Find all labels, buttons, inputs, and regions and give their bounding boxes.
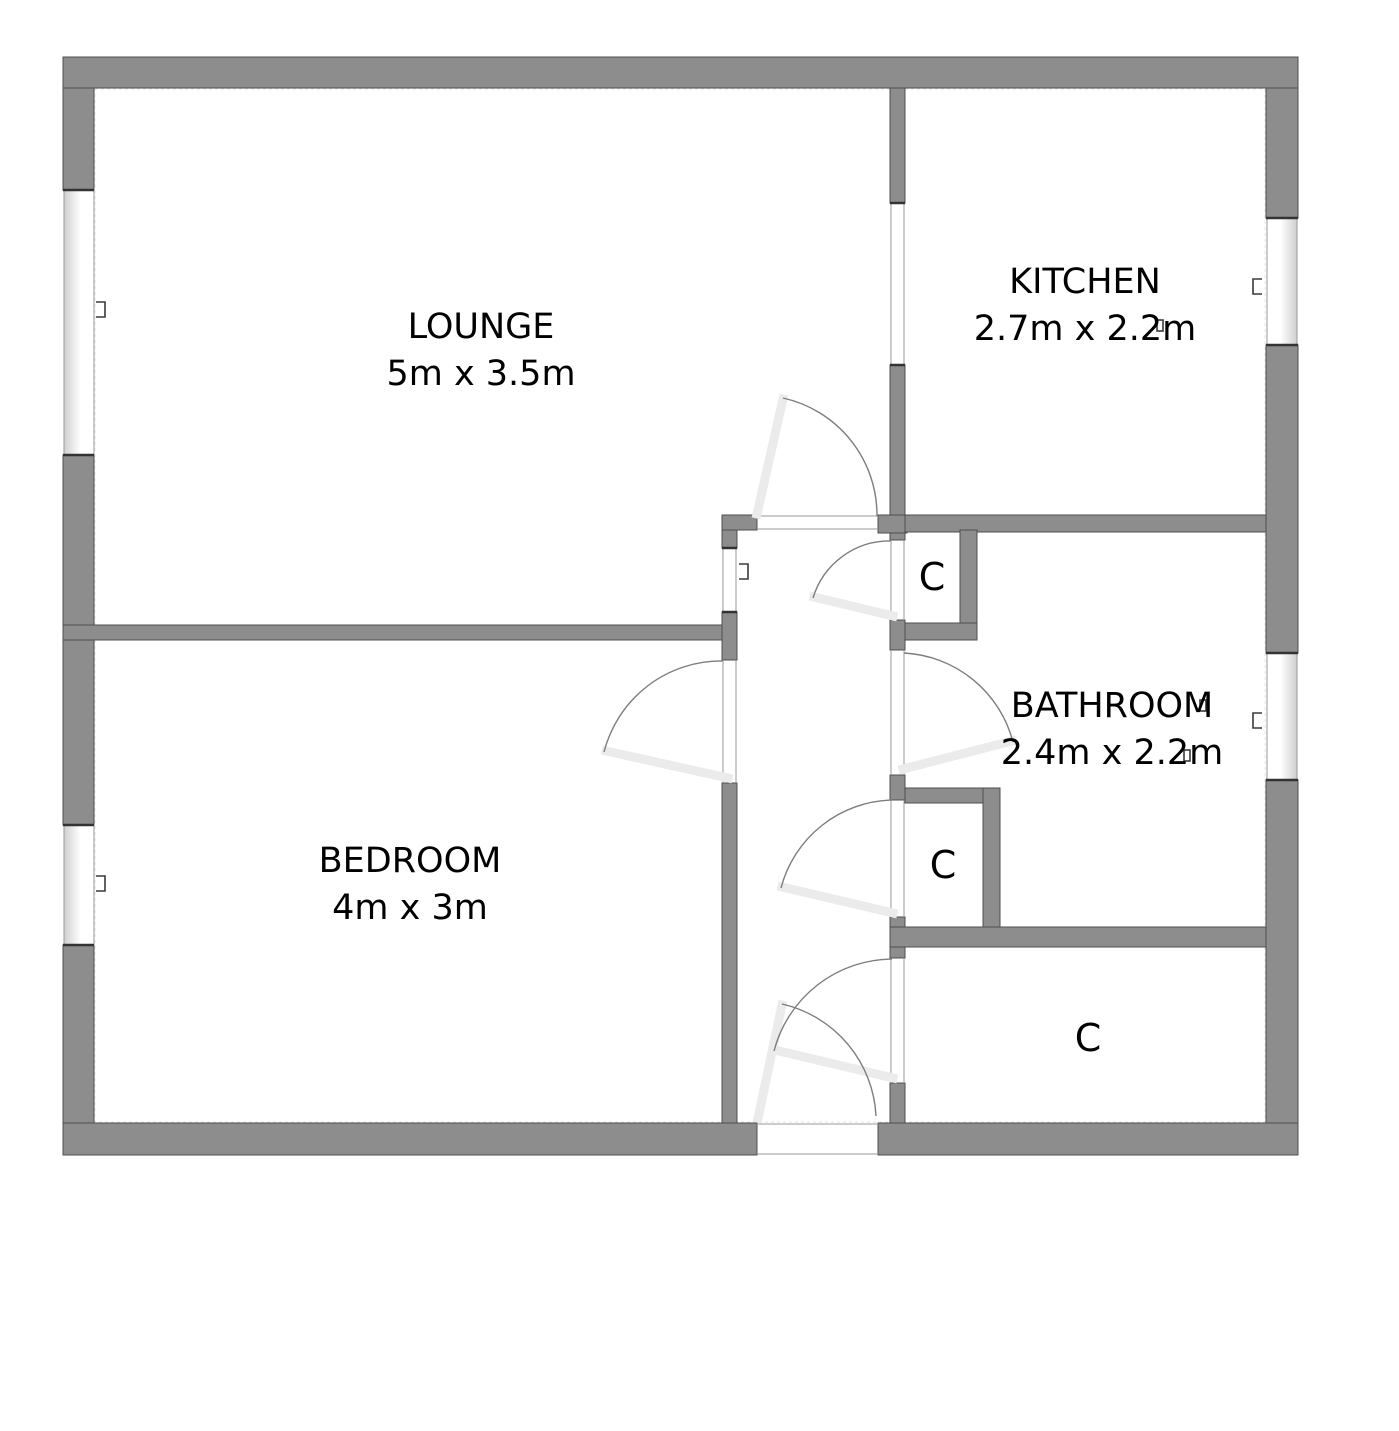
room-dims: 5m x 3.5m [386,351,575,398]
plan-symbols [96,279,1262,891]
floorplan-page: LOUNGE 5m x 3.5m KITCHEN 2.7m x 2.2m BAT… [0,0,1399,1431]
cupboard-label-3: C [1075,1015,1102,1061]
wall-cross-junction [878,515,907,533]
wall-left-seg3 [63,640,94,825]
wall-bottom-left [63,1123,757,1155]
wall-bottom-right [878,1123,1298,1155]
room-name: KITCHEN [974,259,1196,306]
wall-lounge-kitchen-seg1 [890,88,905,203]
wall-hall-left-seg1 [722,530,737,548]
window-kitchen [1267,218,1297,345]
wall-right-seg3 [1266,780,1298,1123]
footer: J P 7E Laird Place Glasgow G40 1JS [0,1240,1399,1360]
window-bracket-icon [96,302,105,317]
cupboard-label-2: C [930,842,957,888]
arc-cupboard1-door [813,541,891,598]
window-bracket-icon [1253,713,1262,728]
room-name: LOUNGE [386,304,575,351]
room-dims: 4m x 3m [319,885,502,932]
leaf-cupboard3-door [775,1050,893,1078]
arc-bathroom-door [904,653,1013,742]
leaf-cupboard2-door [782,887,893,913]
window-bedroom [64,825,94,945]
room-label-lounge: LOUNGE 5m x 3.5m [386,304,575,398]
leaf-bathroom-door [903,741,1012,769]
window-bracket-icon [1253,279,1262,294]
window-lounge [64,190,94,455]
window-bracket-icon [96,876,105,891]
wall-bathroom-bottom [890,927,1266,947]
wall-hall-right-seg1 [890,533,905,540]
arc-lounge-door [783,398,877,516]
arc-cupboard3-door [774,959,892,1051]
room-label-kitchen: KITCHEN 2.7m x 2.2m [974,259,1196,353]
room-dims: 2.7m x 2.2m [974,306,1196,353]
opening-end-caps [722,203,905,612]
wall-hall-left-seg3 [722,783,737,1123]
window-bracket-icon [739,564,748,579]
wall-hall-right-seg5 [890,1083,905,1123]
leaf-lounge-door [757,399,783,514]
wall-kitchen-bathroom [905,515,1266,532]
room-dims: 2.4m x 2.2m [1001,730,1223,777]
wall-hall-right-seg2 [890,620,905,650]
arc-cupboard2-door [781,800,892,888]
leaf-cupboard1-door [814,597,893,616]
wall-hall-left-seg2 [722,612,737,660]
wall-hall-right-seg3 [890,775,905,800]
wall-right-seg1 [1266,88,1298,218]
cupboard-label-1: C [919,554,946,600]
wall-left-seg1 [63,88,94,190]
arc-bedroom-door [604,661,723,752]
leaf-bedroom-door [606,751,728,778]
door-frames [723,203,904,1154]
wall-top [63,57,1298,88]
wall-lounge-bedroom [63,625,737,640]
wall-lounge-kitchen-seg2 [890,365,905,515]
inner-face-guide [95,89,1265,1122]
window-bathroom [1267,653,1297,780]
wall-left-seg2 [63,455,94,625]
room-name: BATHROOM [1001,683,1223,730]
wall-cupboard1-bottom [905,623,977,640]
room-label-bedroom: BEDROOM 4m x 3m [319,838,502,932]
room-name: BEDROOM [319,838,502,885]
wall-cupboard2-right [983,788,1000,947]
wall-right-seg2 [1266,345,1298,653]
walls [63,57,1298,1155]
leaf-entrance-door [758,1005,782,1118]
wall-left-seg4 [63,945,94,1123]
door-leaves [606,399,1012,1118]
room-label-bathroom: BATHROOM 2.4m x 2.2m [1001,683,1223,777]
